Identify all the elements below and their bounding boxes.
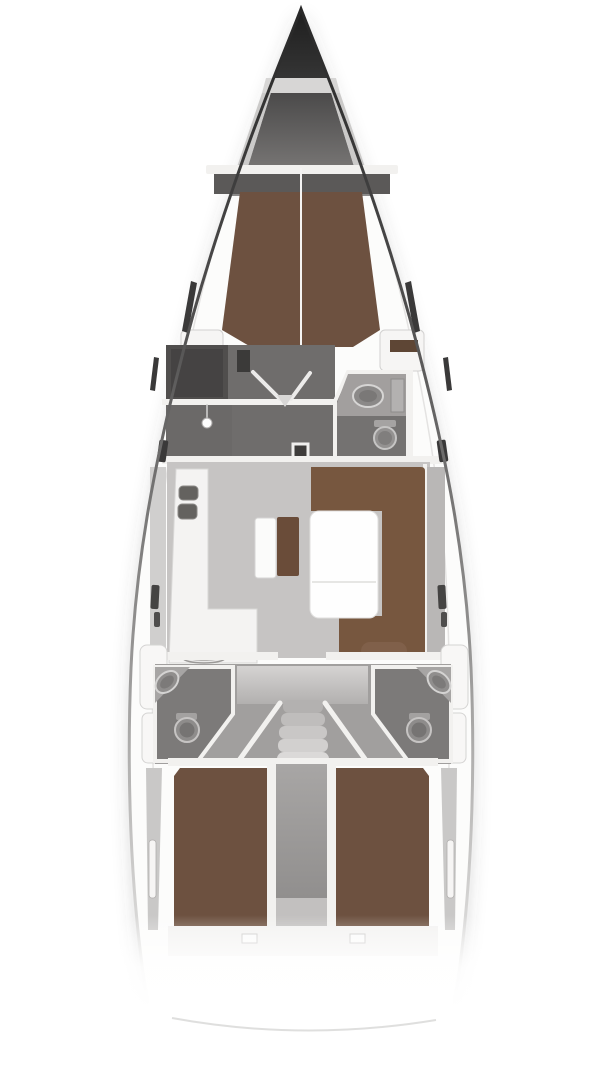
hull-slot-aft-starboard — [447, 840, 454, 898]
galley-sink-1 — [179, 486, 198, 500]
shower-head-icon — [202, 418, 212, 428]
mast-post — [293, 444, 308, 458]
hull-window-salon-port-2 — [154, 612, 160, 627]
galley-sink-2 — [178, 504, 197, 519]
wood-trim-starboard — [390, 340, 418, 352]
hull-window-salon-port-1 — [150, 585, 159, 609]
salon-table — [310, 511, 378, 618]
fade-gradient — [100, 915, 508, 1015]
port-aft-berth — [174, 768, 268, 930]
aft-section — [146, 664, 457, 956]
port-aft-toilet-bowl — [180, 723, 195, 738]
hull-window-mid-port — [150, 357, 159, 391]
salon-aft-wall-right — [326, 652, 452, 660]
locker-door-dark — [237, 350, 250, 372]
port-forward-head-floor — [166, 405, 232, 459]
hull-window-salon-starboard-1 — [437, 585, 446, 609]
starboard-aft-toilet-bowl — [412, 723, 427, 738]
companionway-landing — [237, 666, 368, 704]
hull-window-mid-starboard — [443, 357, 452, 391]
starboard-aft-berth — [335, 768, 429, 930]
head-sink-basin — [359, 390, 377, 402]
sidewall-left — [150, 467, 166, 660]
fade-solid — [100, 1008, 508, 1080]
stair-step-1 — [283, 700, 323, 713]
nav-seat-base — [255, 518, 276, 578]
yacht-floorplan — [0, 0, 608, 1080]
mid-passage-floor — [232, 405, 335, 459]
head-outer-wall — [408, 370, 413, 460]
stair-step-4 — [278, 739, 328, 752]
floorplan-canvas — [0, 0, 608, 1080]
stern-fade — [100, 915, 508, 1080]
head-toilet-tank — [374, 420, 396, 427]
hull-window-salon-starboard-2 — [441, 612, 447, 627]
engine-bay-wall-right — [327, 764, 336, 930]
sidewall-right — [427, 467, 445, 660]
stair-step-3 — [279, 726, 327, 739]
head-cabinet — [391, 379, 404, 412]
nav-seat-cushion — [277, 517, 299, 576]
salon-aft-wall-left — [162, 652, 278, 660]
hull-slot-aft-port — [149, 840, 156, 898]
stair-step-2 — [281, 713, 325, 726]
engine-bay-wall-left — [267, 764, 276, 930]
head-toilet-bowl — [378, 431, 392, 445]
mid-bulkhead-wall — [162, 399, 339, 405]
